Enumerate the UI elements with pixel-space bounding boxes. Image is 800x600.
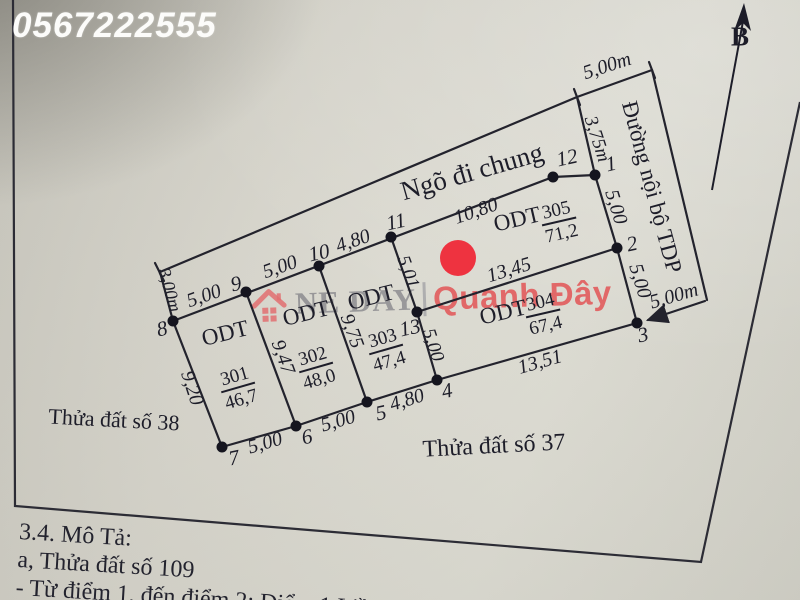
phone-number: 0567222555 bbox=[12, 6, 217, 46]
survey-photo: NE DAY Quanh Đây bbox=[0, 0, 800, 600]
point-10-label: 10 bbox=[307, 241, 332, 266]
point-12-label: 12 bbox=[555, 146, 580, 171]
location-marker-dot bbox=[440, 240, 476, 276]
point-11-label: 11 bbox=[384, 210, 407, 235]
point-13-label: 13 bbox=[398, 316, 423, 341]
north-label: B bbox=[731, 24, 749, 51]
